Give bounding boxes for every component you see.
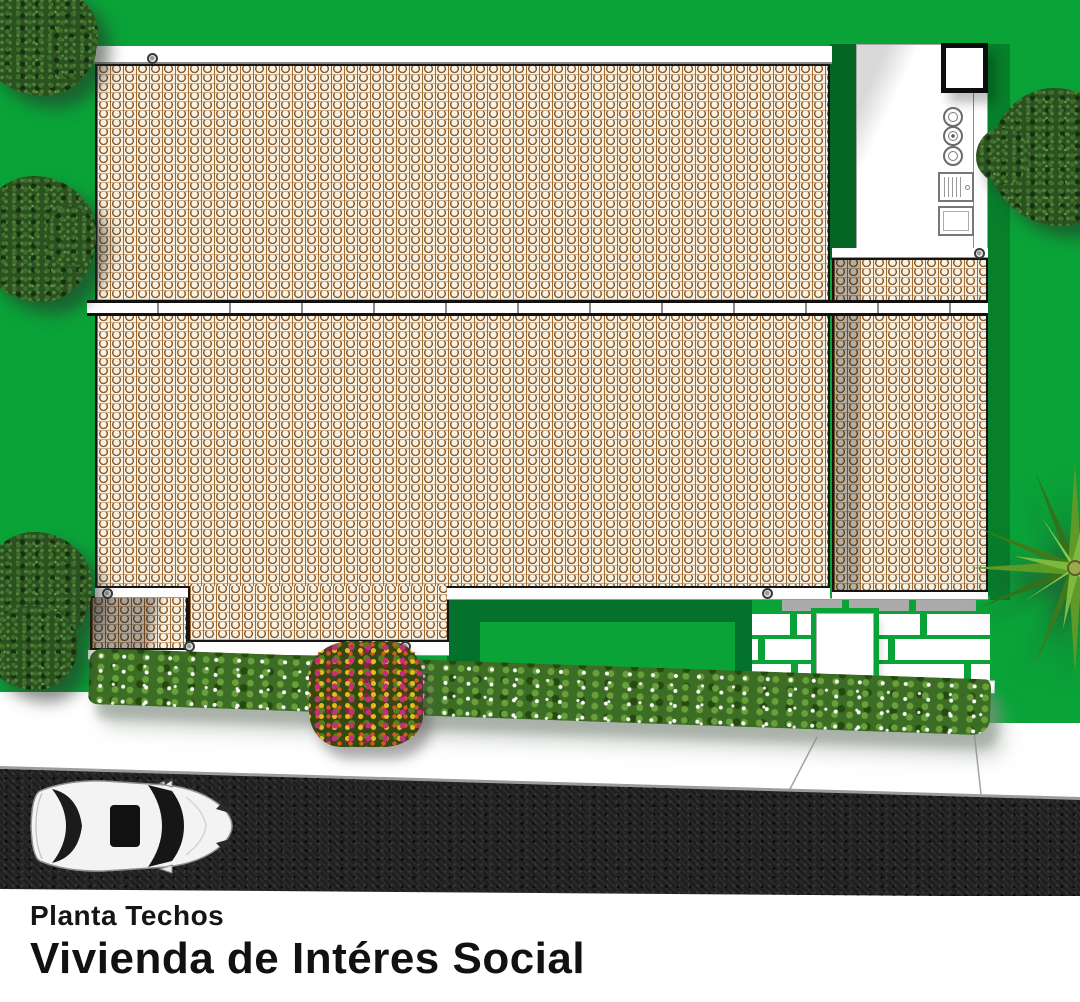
roof-drain-icon — [974, 248, 985, 259]
title-block: Planta Techos Vivienda de Intéres Social — [0, 896, 1080, 1002]
tree-top-left — [0, 0, 98, 96]
burner-icon — [943, 146, 963, 166]
planter-flowers — [309, 641, 423, 747]
roof-fascia — [832, 248, 988, 258]
shadow-left-of-patio — [830, 44, 858, 260]
palm-tree — [965, 448, 1080, 688]
roof-extension — [188, 586, 449, 642]
plan-title: Vivienda de Intéres Social — [30, 934, 585, 984]
tree-right — [990, 88, 1080, 226]
drainboard-sink-icon — [938, 172, 974, 202]
tree-bottom-left — [0, 532, 92, 648]
main-roof-lower-slope — [95, 314, 830, 588]
roof-drain-icon — [147, 53, 158, 64]
counter-unit-icon — [938, 206, 974, 236]
car-sunroof — [110, 805, 140, 847]
burner-icon — [943, 126, 963, 146]
porch-roof-shadow — [92, 598, 186, 648]
tree-left — [0, 176, 96, 302]
plan-subtitle: Planta Techos — [30, 900, 224, 932]
water-tank-icon — [941, 43, 988, 93]
roof-drain-icon — [102, 588, 113, 599]
car-top-view — [26, 777, 238, 875]
porch-roof — [90, 596, 188, 650]
roof-drain-icon — [762, 588, 773, 599]
roof-fascia-top — [92, 46, 832, 64]
patio-square-feature — [816, 613, 874, 679]
roof-plan-canvas: Planta Techos Vivienda de Intéres Social — [0, 0, 1080, 1002]
main-roof-upper-slope — [95, 64, 830, 302]
burner-icon — [943, 107, 963, 127]
roof-ridge-band — [87, 300, 988, 316]
